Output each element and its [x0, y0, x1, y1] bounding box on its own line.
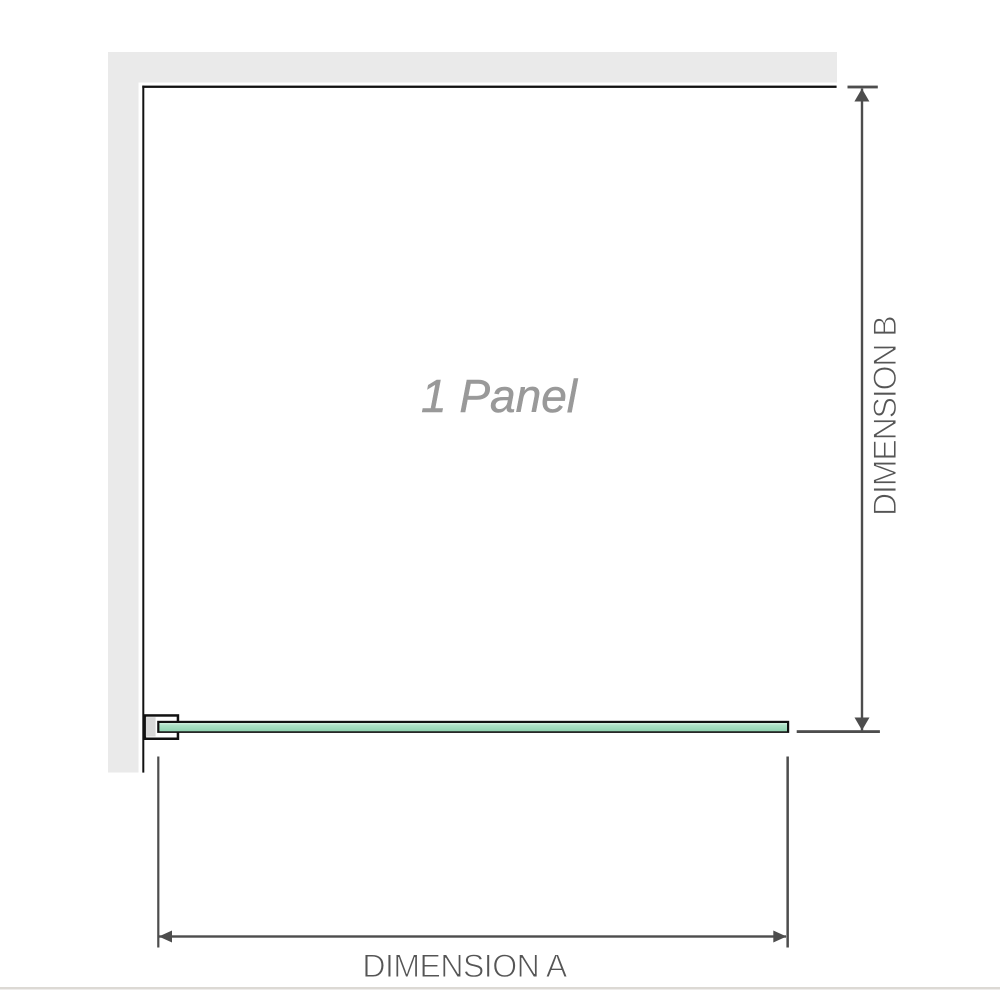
- svg-text:1 Panel: 1 Panel: [421, 370, 579, 422]
- svg-text:DIMENSION B: DIMENSION B: [867, 317, 903, 516]
- svg-text:DIMENSION A: DIMENSION A: [362, 948, 567, 984]
